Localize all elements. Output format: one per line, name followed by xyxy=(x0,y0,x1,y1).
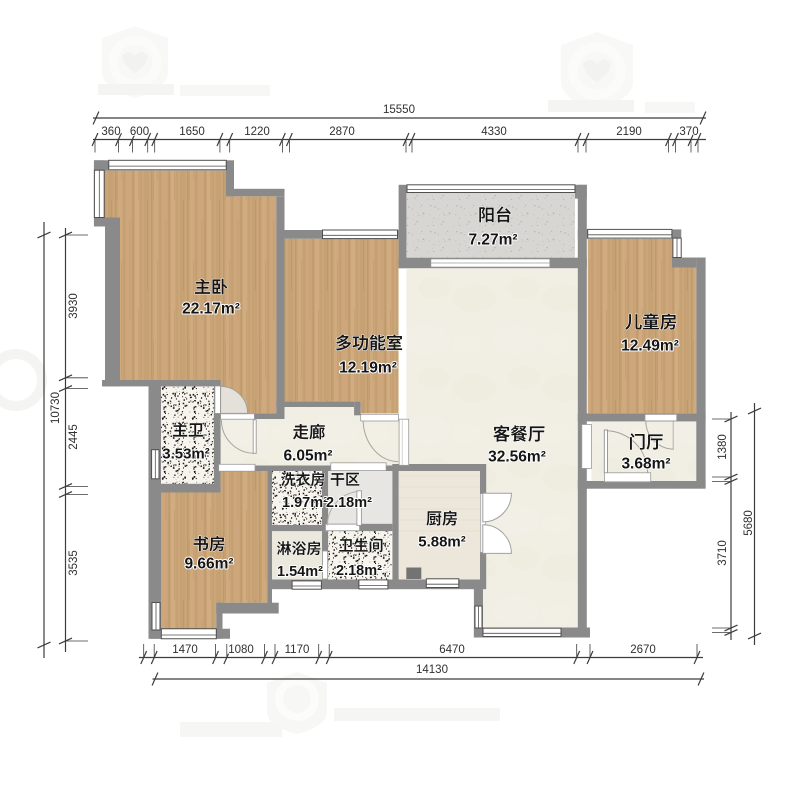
svg-text:1170: 1170 xyxy=(285,644,310,656)
svg-text:7.27m²: 7.27m² xyxy=(468,232,517,249)
svg-text:2670: 2670 xyxy=(630,644,656,656)
svg-text:3.53m²: 3.53m² xyxy=(162,446,210,463)
svg-text:1380: 1380 xyxy=(717,434,729,460)
svg-text:3535: 3535 xyxy=(68,550,80,576)
svg-text:2870: 2870 xyxy=(329,126,355,138)
svg-text:32.56m²: 32.56m² xyxy=(488,449,546,466)
svg-text:600: 600 xyxy=(130,126,149,138)
svg-text:6.05m²: 6.05m² xyxy=(283,448,332,465)
svg-text:2445: 2445 xyxy=(68,424,80,450)
svg-text:5.88m²: 5.88m² xyxy=(418,534,466,551)
svg-text:3.68m²: 3.68m² xyxy=(621,456,670,473)
svg-text:1.54m²: 1.54m² xyxy=(277,564,323,580)
svg-text:14130: 14130 xyxy=(416,664,448,676)
svg-text:1.97m²: 1.97m² xyxy=(282,495,328,511)
svg-text:12.49m²: 12.49m² xyxy=(621,338,679,355)
svg-text:22.17m²: 22.17m² xyxy=(182,301,240,318)
svg-text:10730: 10730 xyxy=(50,392,62,424)
svg-text:4330: 4330 xyxy=(481,126,507,138)
svg-text:9.66m²: 9.66m² xyxy=(184,556,233,573)
svg-text:3710: 3710 xyxy=(717,540,729,566)
svg-text:2.18m²: 2.18m² xyxy=(326,495,372,511)
svg-text:360: 360 xyxy=(101,126,120,138)
svg-text:6470: 6470 xyxy=(439,644,465,656)
svg-text:15550: 15550 xyxy=(383,104,415,116)
svg-text:370: 370 xyxy=(679,126,698,138)
svg-text:2190: 2190 xyxy=(616,126,642,138)
svg-text:5680: 5680 xyxy=(743,510,755,536)
svg-text:1470: 1470 xyxy=(172,644,198,656)
svg-text:3930: 3930 xyxy=(68,293,80,319)
svg-text:12.19m²: 12.19m² xyxy=(339,360,397,377)
svg-text:1650: 1650 xyxy=(179,126,205,138)
svg-text:1220: 1220 xyxy=(244,126,270,138)
svg-text:1080: 1080 xyxy=(228,644,254,656)
svg-text:2.18m²: 2.18m² xyxy=(336,563,382,579)
